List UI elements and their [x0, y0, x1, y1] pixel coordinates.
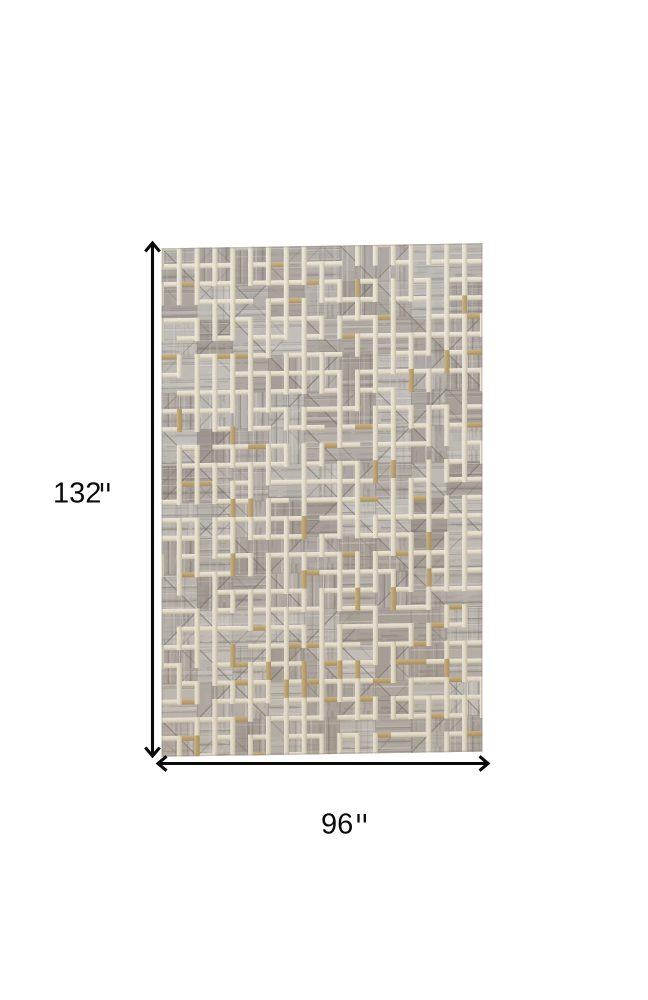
svg-text:132: 132	[53, 478, 101, 510]
svg-text:96: 96	[321, 809, 353, 841]
